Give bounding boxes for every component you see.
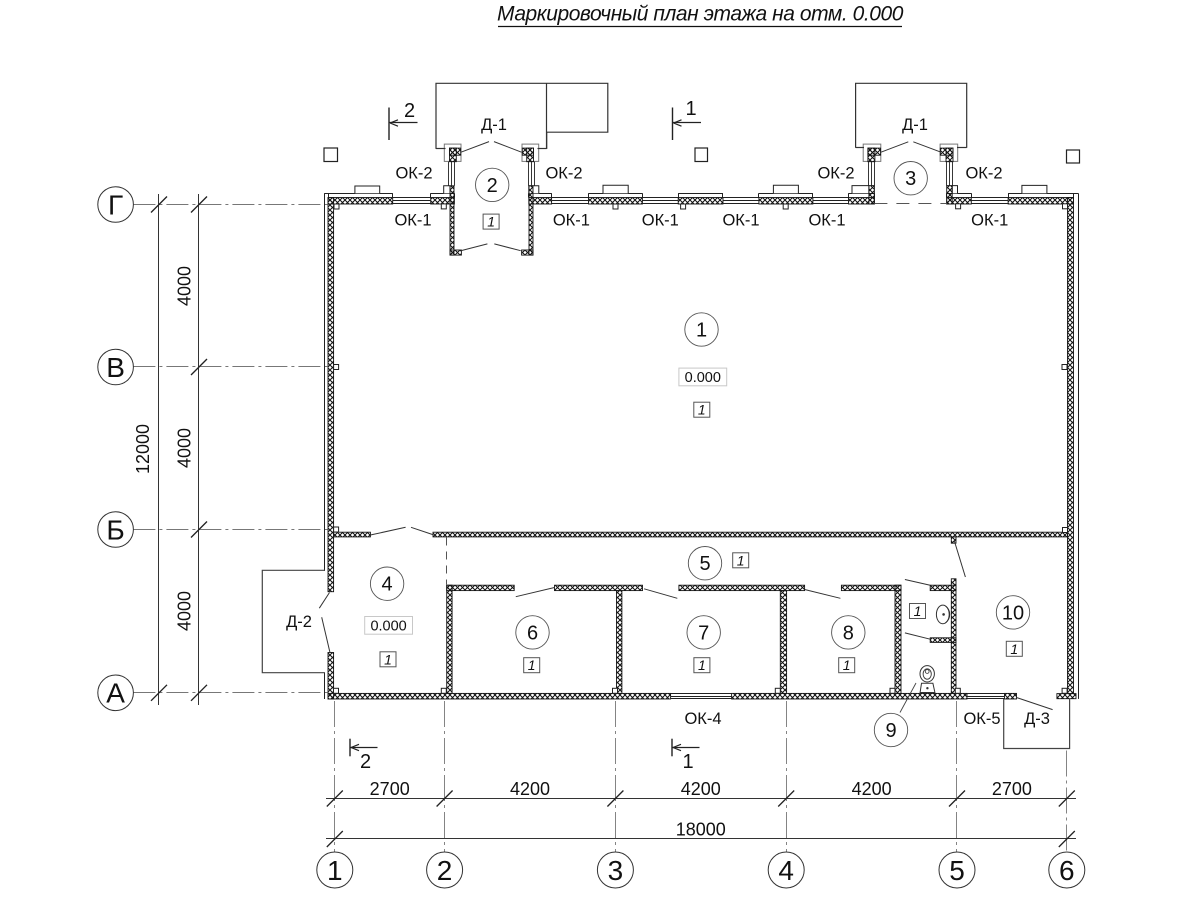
svg-text:1: 1 xyxy=(1010,641,1018,657)
svg-text:12000: 12000 xyxy=(133,424,153,474)
svg-text:7: 7 xyxy=(698,622,709,644)
svg-text:4200: 4200 xyxy=(852,779,892,799)
svg-text:3: 3 xyxy=(608,855,624,886)
svg-text:1: 1 xyxy=(685,98,696,120)
svg-text:2: 2 xyxy=(404,100,415,122)
svg-text:6: 6 xyxy=(1059,855,1075,886)
svg-text:6: 6 xyxy=(527,622,538,644)
svg-text:1: 1 xyxy=(737,552,745,568)
svg-text:ОК-1: ОК-1 xyxy=(722,212,759,230)
svg-text:В: В xyxy=(106,352,125,383)
svg-text:4000: 4000 xyxy=(175,591,195,631)
svg-text:ОК-2: ОК-2 xyxy=(395,165,432,183)
svg-text:ОК-1: ОК-1 xyxy=(808,212,845,230)
svg-text:ОК-1: ОК-1 xyxy=(642,212,679,230)
svg-text:3: 3 xyxy=(905,168,916,190)
svg-text:4: 4 xyxy=(778,855,794,886)
svg-text:1: 1 xyxy=(384,651,392,667)
svg-text:10: 10 xyxy=(1002,602,1024,624)
svg-text:4200: 4200 xyxy=(681,779,721,799)
svg-text:4000: 4000 xyxy=(175,428,195,468)
svg-text:ОК-1: ОК-1 xyxy=(394,212,431,230)
svg-text:Г: Г xyxy=(108,189,123,220)
svg-text:А: А xyxy=(106,678,125,709)
svg-text:5: 5 xyxy=(699,553,710,575)
svg-text:4200: 4200 xyxy=(510,779,550,799)
svg-text:1: 1 xyxy=(327,855,343,886)
svg-text:ОК-1: ОК-1 xyxy=(971,212,1008,230)
svg-text:4: 4 xyxy=(382,574,393,596)
svg-text:Д-2: Д-2 xyxy=(286,613,312,631)
svg-text:Маркировочный план этажа на от: Маркировочный план этажа на отм. 0.000 xyxy=(497,3,904,26)
svg-text:1: 1 xyxy=(843,657,851,673)
svg-text:ОК-5: ОК-5 xyxy=(963,710,1000,728)
svg-text:ОК-1: ОК-1 xyxy=(553,212,590,230)
svg-text:4000: 4000 xyxy=(175,266,195,306)
svg-text:2700: 2700 xyxy=(992,779,1032,799)
svg-text:9: 9 xyxy=(885,720,896,742)
svg-text:5: 5 xyxy=(949,855,965,886)
svg-text:ОК-2: ОК-2 xyxy=(545,165,582,183)
svg-text:Д-1: Д-1 xyxy=(902,116,928,134)
svg-text:0.000: 0.000 xyxy=(685,370,721,386)
svg-text:ОК-2: ОК-2 xyxy=(817,165,854,183)
svg-text:2: 2 xyxy=(487,175,498,197)
svg-text:8: 8 xyxy=(843,622,854,644)
svg-text:ОК-2: ОК-2 xyxy=(965,165,1002,183)
svg-text:1: 1 xyxy=(487,214,495,230)
svg-text:1: 1 xyxy=(528,657,536,673)
svg-text:1: 1 xyxy=(698,657,706,673)
svg-text:Б: Б xyxy=(106,514,124,545)
svg-text:1: 1 xyxy=(698,402,706,418)
svg-text:2700: 2700 xyxy=(370,779,410,799)
svg-text:2: 2 xyxy=(437,855,453,886)
svg-text:Д-3: Д-3 xyxy=(1024,710,1050,728)
svg-text:Д-1: Д-1 xyxy=(481,116,507,134)
svg-text:0.000: 0.000 xyxy=(370,618,406,634)
svg-text:1: 1 xyxy=(696,320,707,342)
svg-text:18000: 18000 xyxy=(676,820,726,840)
svg-text:ОК-4: ОК-4 xyxy=(684,710,721,728)
svg-text:1: 1 xyxy=(914,603,922,619)
svg-text:1: 1 xyxy=(682,751,693,773)
svg-text:2: 2 xyxy=(360,751,371,773)
